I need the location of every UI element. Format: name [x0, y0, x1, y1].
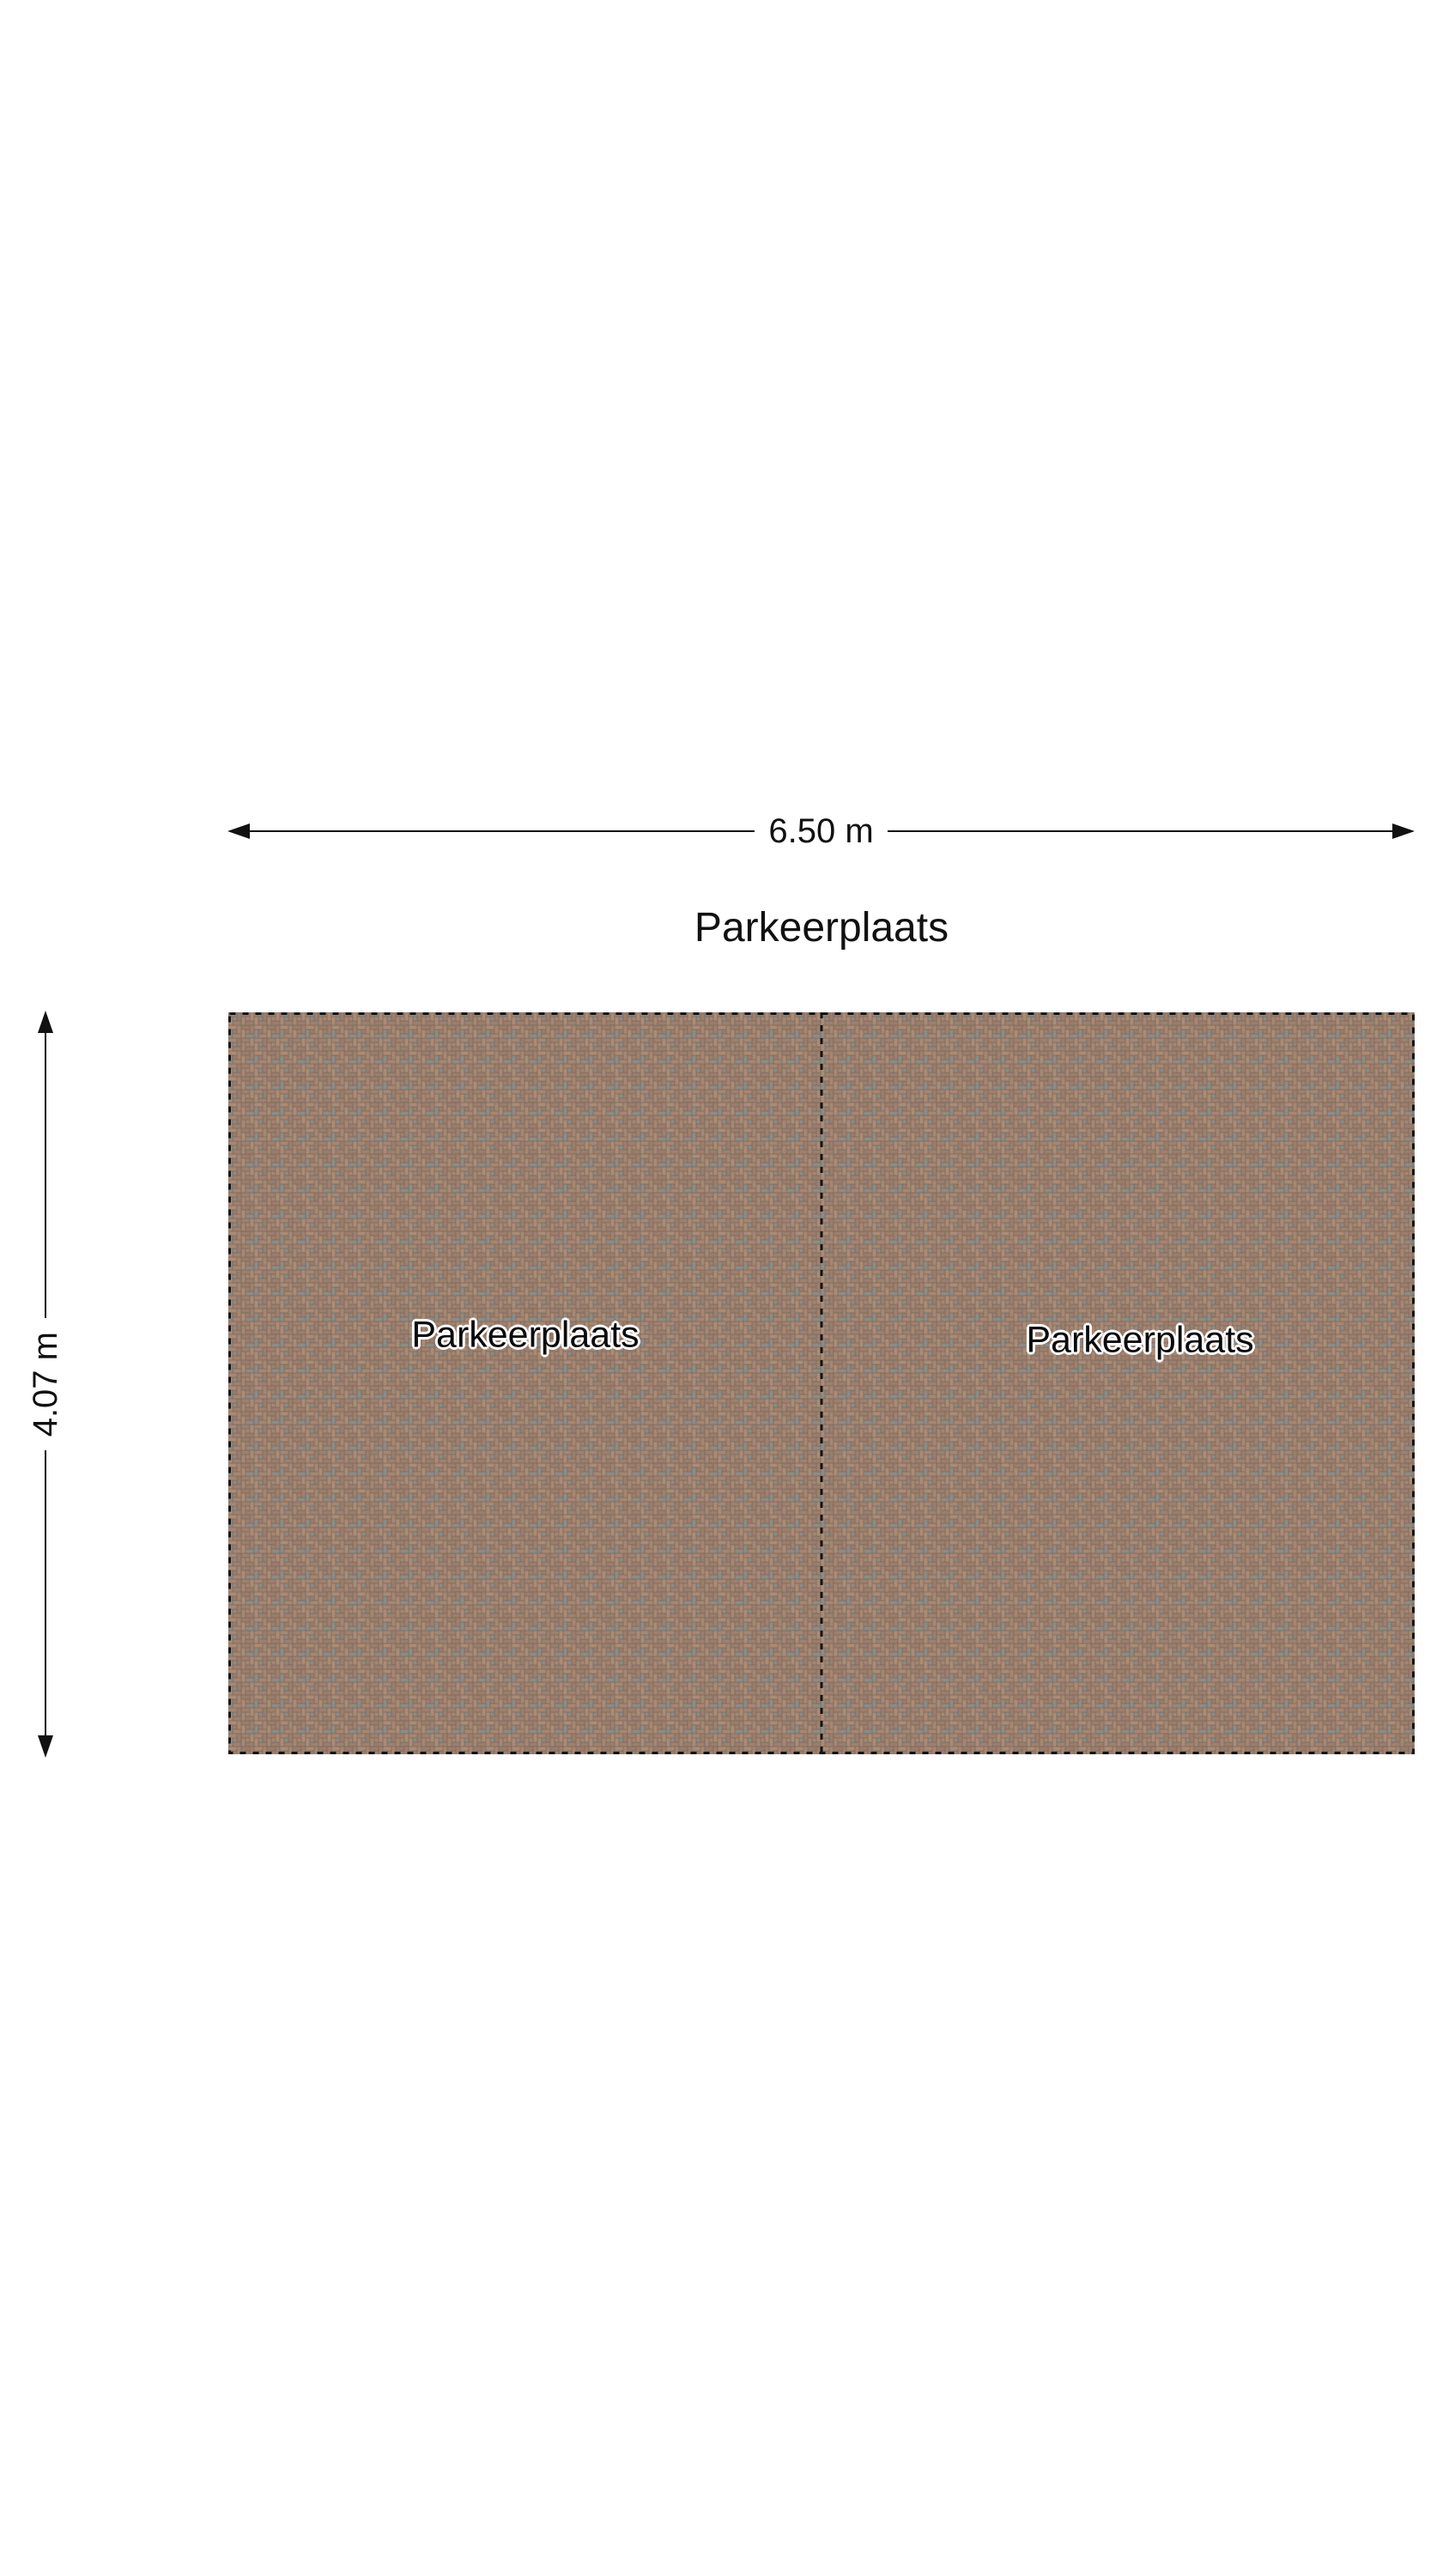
- dimension-line: [250, 830, 755, 832]
- arrow-right-icon: [1392, 823, 1415, 839]
- plan-title: Parkeerplaats: [228, 907, 1415, 950]
- parking-spot-label-right: Parkeerplaats: [1026, 1322, 1253, 1359]
- paver-fill: [228, 1012, 1415, 1754]
- arrow-up-icon: [38, 1011, 53, 1033]
- width-dimension: 6.50 m: [227, 811, 1415, 852]
- height-dimension: 4.07 m: [25, 1011, 66, 1758]
- dimension-line: [45, 1033, 46, 1318]
- dimension-line: [888, 830, 1392, 832]
- arrow-down-icon: [38, 1735, 53, 1758]
- parking-spot-label-left: Parkeerplaats: [411, 1317, 639, 1354]
- height-dimension-label: 4.07 m: [28, 1318, 63, 1450]
- width-dimension-label: 6.50 m: [755, 814, 887, 848]
- parking-area: Parkeerplaats Parkeerplaats: [228, 1012, 1415, 1754]
- dimension-line: [45, 1450, 46, 1735]
- paver-texture: [228, 1012, 1415, 1754]
- arrow-left-icon: [227, 823, 250, 839]
- floorplan-canvas: Parkeerplaats 6.50 m 4.07 m: [0, 0, 1449, 2576]
